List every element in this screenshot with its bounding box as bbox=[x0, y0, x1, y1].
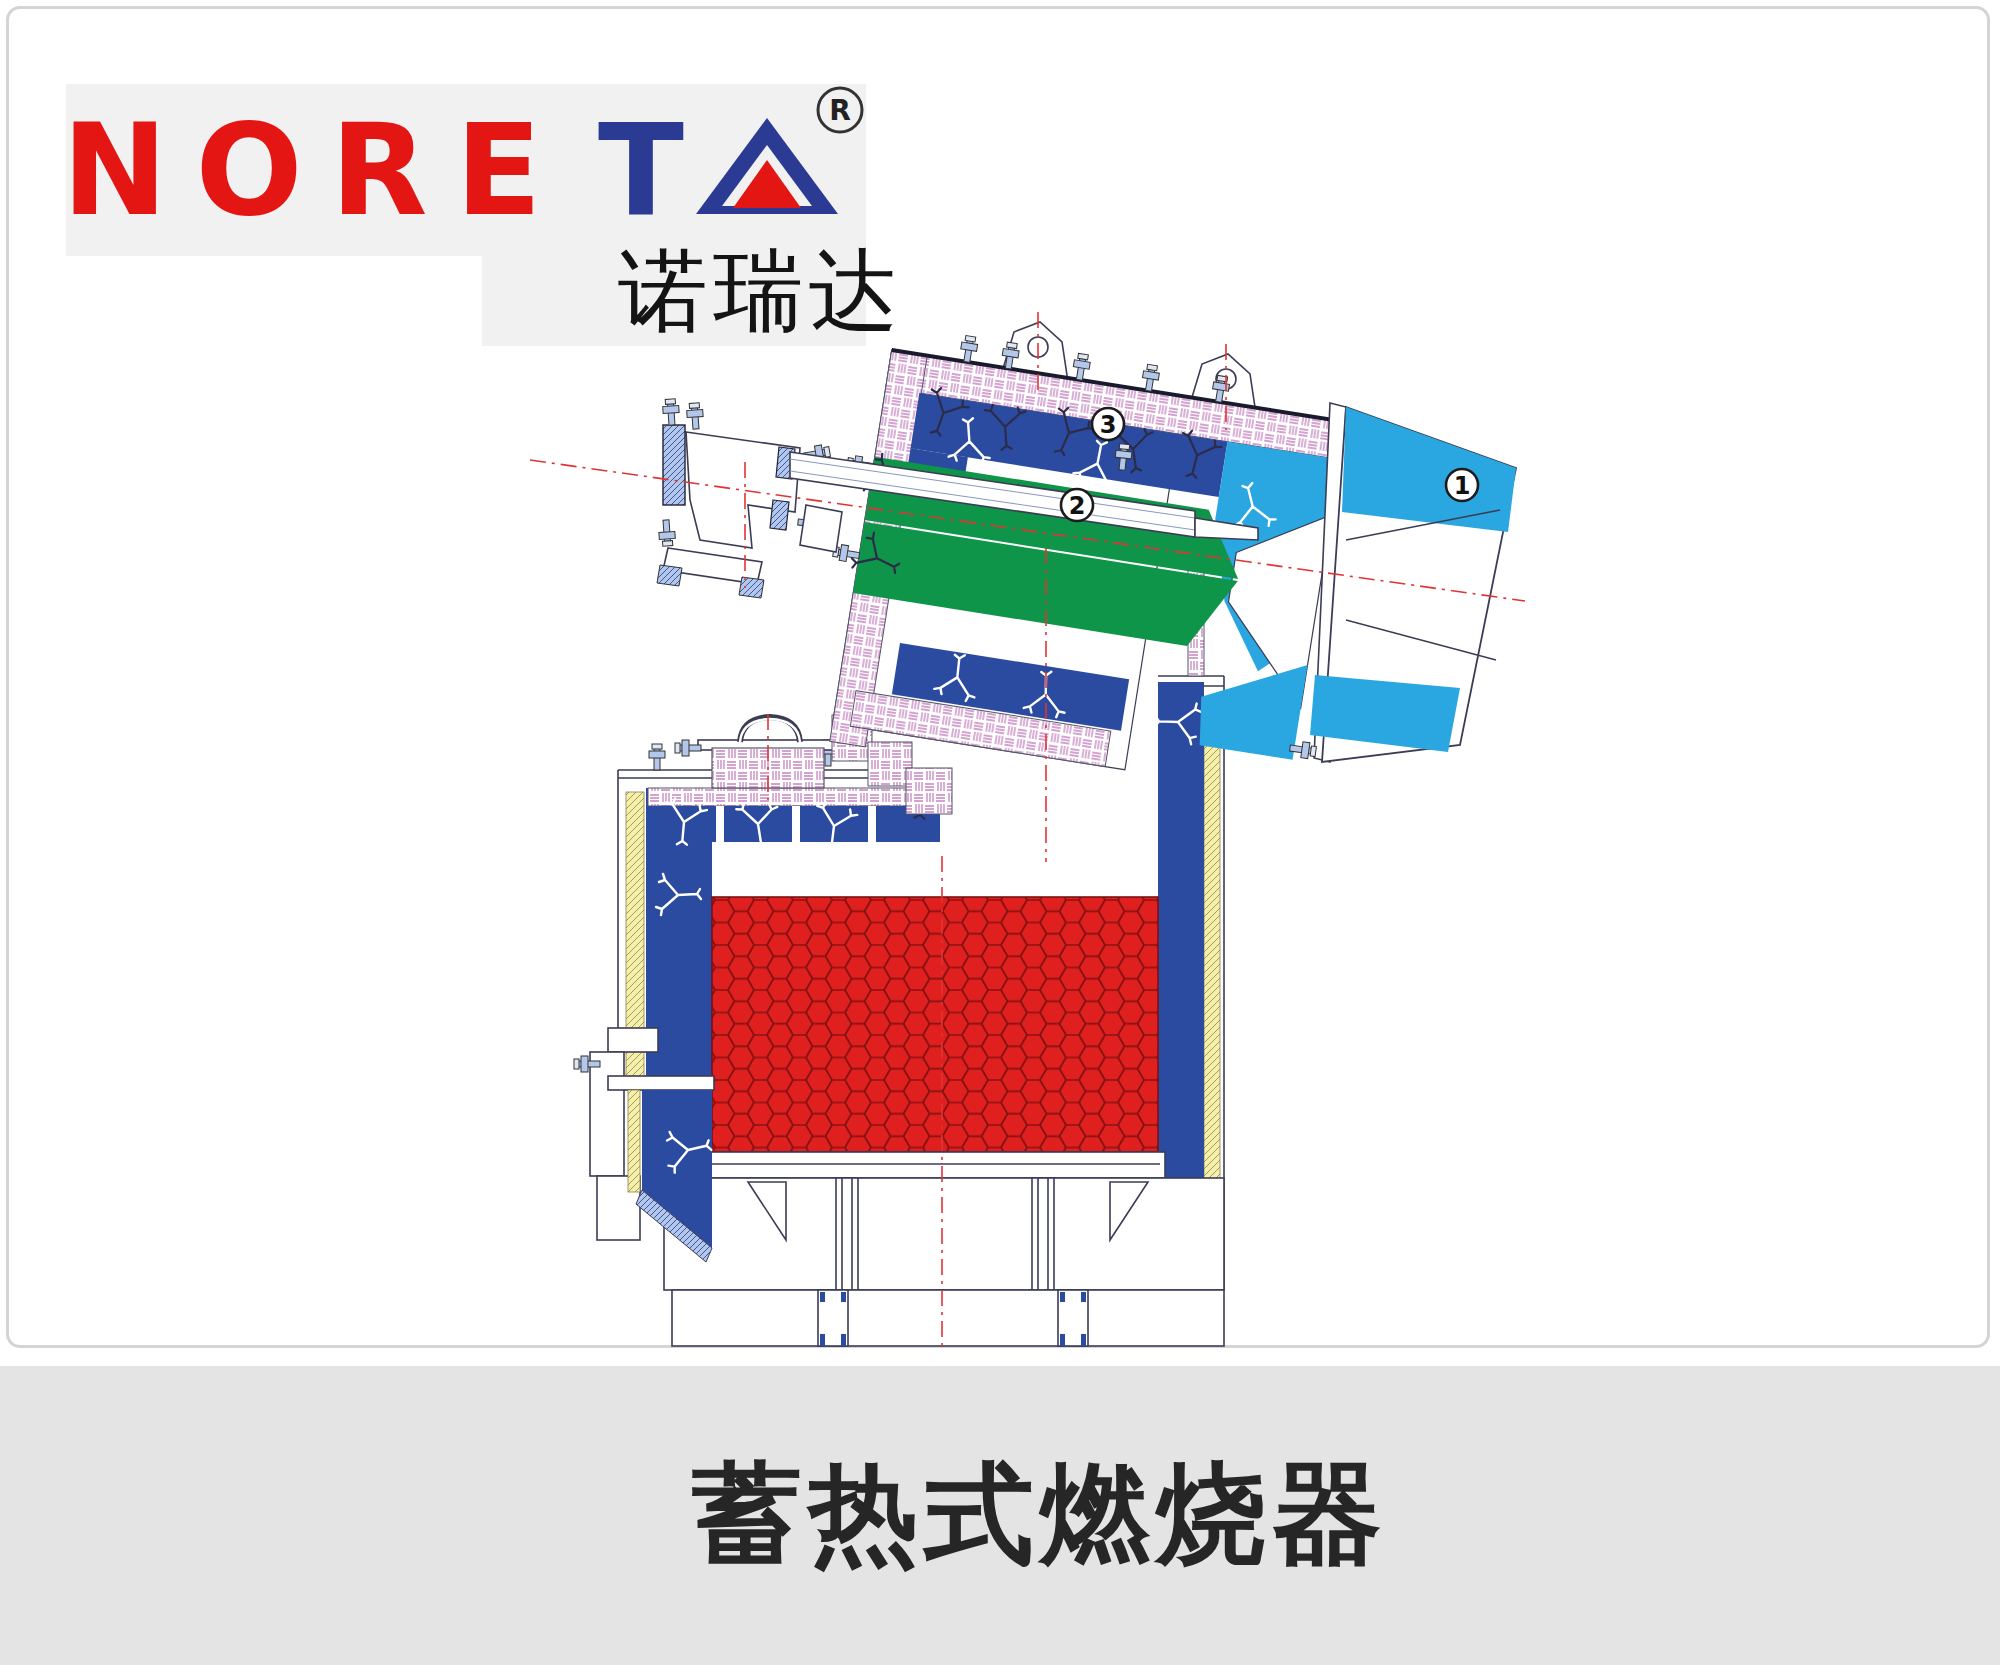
logo-text-t: T bbox=[598, 97, 684, 244]
svg-text:2: 2 bbox=[1069, 492, 1086, 520]
burner-duct bbox=[804, 320, 1350, 813]
svg-text:R: R bbox=[829, 94, 851, 127]
callout-1: 1 bbox=[1446, 469, 1478, 501]
svg-text:1: 1 bbox=[1454, 472, 1471, 500]
base-foot-channel bbox=[818, 1290, 848, 1346]
inlet-flange bbox=[663, 425, 685, 505]
logo-text-nore: NORE bbox=[62, 97, 570, 244]
base-foot-channel bbox=[1058, 1290, 1088, 1346]
regenerative-burner-diagram: 1 2 3 bbox=[530, 312, 1525, 1350]
product-card-page: NORE T R 诺瑞达 bbox=[0, 0, 2000, 1665]
callout-2: 2 bbox=[1061, 489, 1093, 521]
logo-chinese-name: 诺瑞达 bbox=[618, 238, 903, 343]
footer-bar: 蓄热式燃烧器 › bbox=[0, 1366, 2000, 1665]
product-title: 蓄热式燃烧器 bbox=[0, 1366, 2000, 1665]
callout-3: 3 bbox=[1092, 408, 1124, 440]
brand-logo: NORE T R 诺瑞达 bbox=[62, 84, 903, 346]
base-skirt bbox=[672, 1290, 1224, 1346]
svg-text:3: 3 bbox=[1100, 411, 1117, 439]
honeycomb-media bbox=[712, 897, 1158, 1152]
